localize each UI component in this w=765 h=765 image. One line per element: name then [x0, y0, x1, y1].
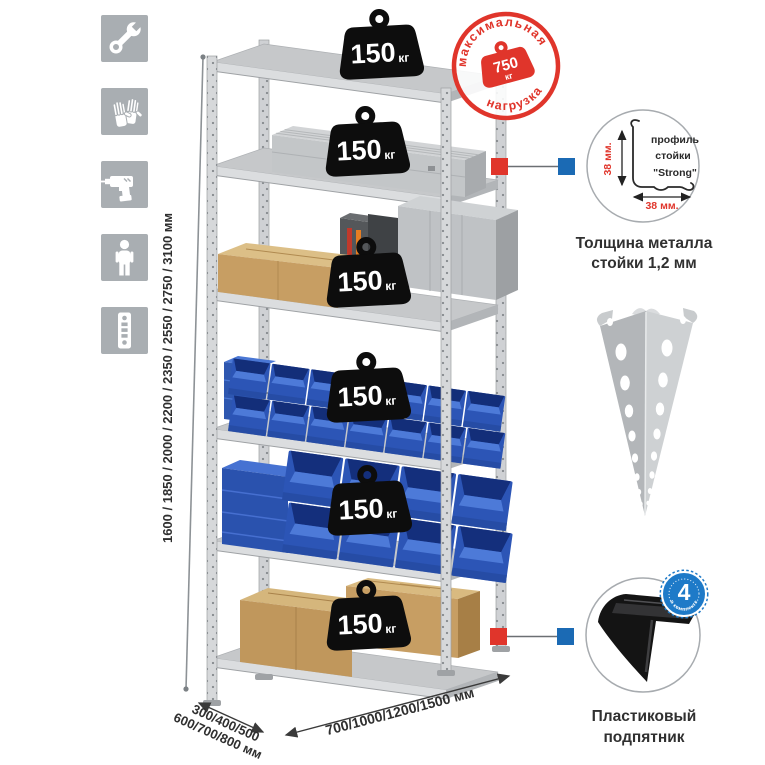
- svg-text:150: 150: [336, 134, 383, 166]
- connector-blue-square: [558, 158, 575, 175]
- weight-badge: 150 кг: [323, 107, 411, 177]
- svg-text:150: 150: [350, 37, 397, 69]
- svg-text:Толщина металла: Толщина металла: [576, 235, 713, 252]
- svg-text:стойки 1,2 мм: стойки 1,2 мм: [591, 255, 696, 272]
- svg-text:кг: кг: [385, 279, 397, 294]
- connector-red-square: [490, 628, 507, 645]
- product-infographic: 150 кг 150 кг 150 кг 150 кг 150 кг: [0, 0, 765, 765]
- svg-text:кг: кг: [385, 394, 397, 409]
- svg-text:150: 150: [338, 493, 385, 525]
- svg-text:38 мм.: 38 мм.: [602, 142, 614, 175]
- svg-text:кг: кг: [384, 148, 396, 163]
- weight-badge: 150 кг: [337, 10, 425, 80]
- svg-text:"Strong": "Strong": [653, 167, 697, 179]
- svg-text:профиль: профиль: [651, 134, 699, 146]
- svg-text:кг: кг: [398, 51, 410, 66]
- corner-post-image: [597, 308, 697, 516]
- svg-text:150: 150: [337, 380, 384, 412]
- svg-text:кг: кг: [386, 507, 398, 522]
- depth-dimension: 300/400/500 600/700/800 мм: [171, 696, 270, 762]
- connector-red-square: [491, 158, 508, 175]
- svg-text:кг: кг: [385, 622, 397, 637]
- connector-blue-square: [557, 628, 574, 645]
- svg-text:150: 150: [337, 265, 384, 297]
- svg-text:150: 150: [337, 608, 384, 640]
- max-load-stamp: максимальная нагрузка 750 кг: [442, 2, 569, 129]
- height-dimension: 1600 / 1850 / 2000 / 2200 / 2350 / 2550 …: [160, 54, 206, 691]
- svg-text:4: 4: [678, 579, 691, 605]
- svg-text:1600 / 1850 / 2000 / 2200 / 23: 1600 / 1850 / 2000 / 2200 / 2350 / 2550 …: [160, 213, 175, 543]
- weight-badge: 150 кг: [324, 353, 412, 423]
- svg-text:стойки: стойки: [655, 150, 690, 162]
- rack-illustration: 150 кг 150 кг 150 кг 150 кг 150 кг: [0, 0, 765, 765]
- profile-detail: 38 мм. 38 мм. профиль стойки "Strong" То…: [576, 110, 713, 272]
- svg-text:Пластиковый: Пластиковый: [592, 708, 697, 725]
- svg-text:подпятник: подпятник: [603, 729, 684, 746]
- plastic-foot-detail: 4 в комплекте Пластиковый подпятник: [586, 571, 708, 747]
- svg-text:38 мм.: 38 мм.: [645, 200, 678, 212]
